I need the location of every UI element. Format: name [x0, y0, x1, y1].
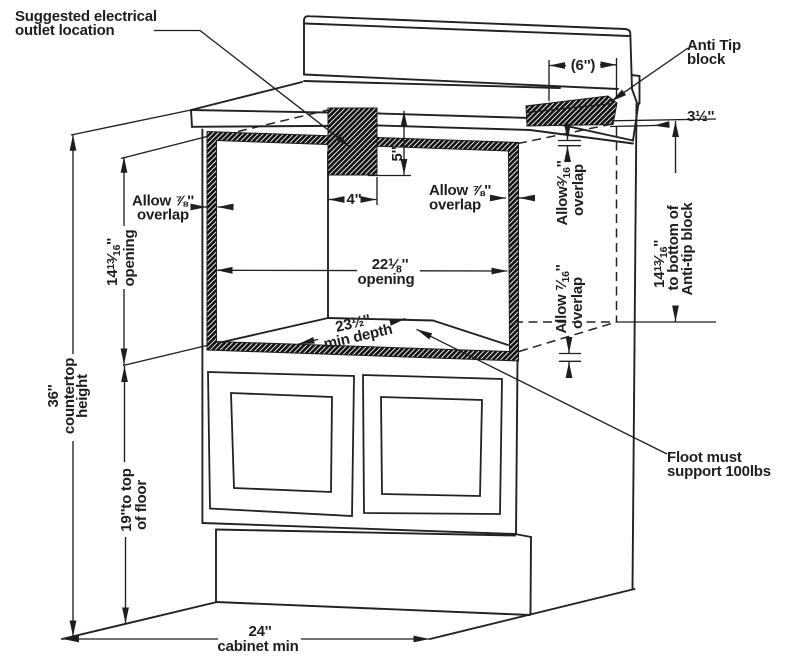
svg-text:3½'': 3½'': [687, 108, 714, 125]
svg-text:of floor: of floor: [133, 480, 150, 530]
svg-text:cabinet min: cabinet min: [217, 638, 298, 655]
svg-text:4'': 4'': [347, 191, 362, 208]
svg-text:overlap: overlap: [137, 207, 189, 224]
svg-text:(6''): (6''): [571, 57, 596, 74]
svg-text:overlap: overlap: [429, 197, 481, 214]
svg-text:opening: opening: [358, 271, 415, 288]
svg-text:outlet location: outlet location: [15, 22, 115, 39]
svg-text:overlap: overlap: [570, 164, 587, 216]
svg-text:opening: opening: [121, 230, 138, 287]
svg-text:36'': 36'': [45, 384, 62, 407]
svg-text:overlap: overlap: [569, 277, 586, 329]
svg-text:block: block: [687, 51, 726, 68]
svg-text:support 100lbs: support 100lbs: [667, 463, 771, 480]
svg-text:5'': 5'': [389, 147, 406, 162]
svg-text:Anti-tip block: Anti-tip block: [679, 202, 696, 296]
svg-text:height: height: [74, 374, 91, 418]
